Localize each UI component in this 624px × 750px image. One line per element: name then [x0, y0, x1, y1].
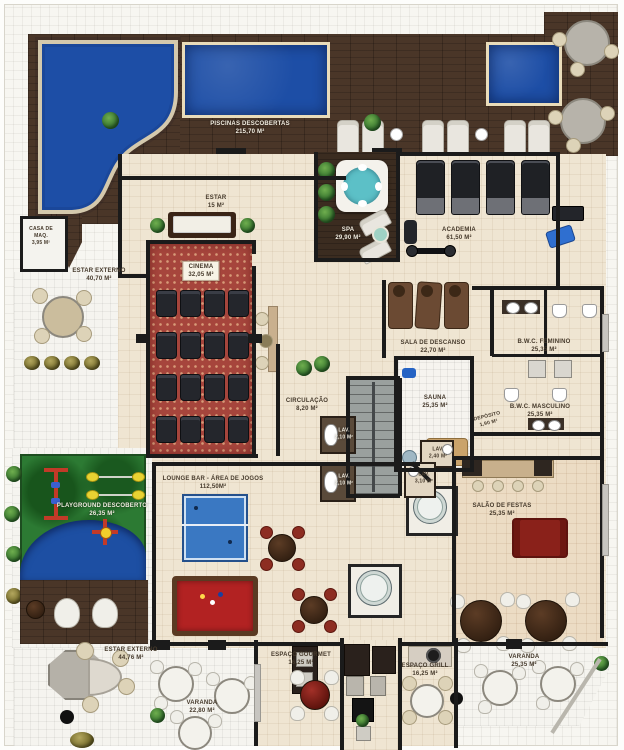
wall	[346, 376, 400, 380]
cinema-seat	[156, 290, 177, 317]
kitchen-cart	[356, 726, 371, 741]
plant	[318, 206, 335, 223]
room-area: 25,35 m²	[518, 346, 571, 354]
toilet	[552, 388, 567, 402]
room-name: CINEMA	[188, 263, 213, 271]
room-area: 2,10 m²	[335, 480, 353, 487]
wall	[492, 354, 602, 357]
wall	[118, 154, 122, 278]
room-label-bwc-feminino: B.W.C. FEMININO 25,35 m²	[518, 338, 571, 354]
room-area: 16,25 m²	[402, 670, 449, 678]
wall	[340, 638, 344, 750]
wall	[398, 378, 402, 496]
tree	[6, 466, 22, 482]
wall-pier	[248, 334, 262, 343]
lounge-chair	[260, 558, 273, 571]
side-table	[475, 128, 488, 141]
window	[602, 314, 609, 352]
cinema-seat	[180, 290, 201, 317]
plant	[150, 218, 165, 233]
window	[254, 664, 261, 722]
treadmill	[416, 160, 445, 215]
salao-stool	[492, 480, 504, 492]
stool	[82, 696, 99, 713]
wall	[152, 462, 156, 646]
pool-middle	[182, 42, 330, 118]
room-name: ESPAÇO GRILL	[402, 662, 449, 670]
wall	[394, 356, 474, 360]
room-area: 32,05 m²	[188, 271, 213, 279]
lounge-chair	[292, 558, 305, 571]
varanda-se-chair	[474, 664, 488, 678]
gourmet-chair	[290, 706, 305, 721]
room-label-espaco-grill: ESPAÇO GRILL 16,25 m²	[402, 662, 449, 678]
toilet	[504, 388, 519, 402]
grill-chair	[438, 710, 453, 725]
wall	[490, 286, 494, 356]
room-label-lav-1: LAV. 2,10 m²	[335, 427, 353, 441]
sink	[548, 420, 561, 431]
deck-chair	[566, 138, 581, 153]
room-name: ESTAR	[206, 194, 227, 202]
sun-lounger	[337, 120, 359, 155]
room-label-lav-2: LAV. 2,10 m²	[335, 473, 353, 487]
room-area: 16,25 m²	[271, 659, 331, 667]
room-name: LOUNGE BAR - ÁREA DE JOGOS	[163, 475, 264, 483]
room-area: 8,20 m²	[286, 405, 328, 413]
barbell-plate	[444, 245, 456, 257]
dining-chair	[516, 594, 531, 609]
room-label-estar-externo-sw: ESTAR EXTERNO 44,76 m²	[104, 646, 157, 662]
salao-stool	[472, 480, 484, 492]
wall	[472, 432, 604, 436]
room-name: ESPAÇO GOURMET	[271, 651, 331, 659]
jacuzzi-seat	[358, 164, 367, 171]
gourmet-chair	[290, 670, 305, 685]
varanda-chair	[206, 672, 220, 686]
room-name: SAUNA	[422, 394, 447, 402]
room-area: 44,76 m²	[104, 654, 157, 662]
cinema-seat	[228, 416, 249, 443]
sink	[506, 302, 520, 314]
room-label-sala-descanso: SALA DE DESCANSO 22,70 m²	[401, 339, 466, 355]
wall	[252, 266, 256, 458]
room-area: 61,50 m²	[442, 234, 476, 242]
sun-lounger	[447, 120, 469, 155]
gourmet-chair	[324, 706, 339, 721]
treadmill	[486, 160, 515, 215]
room-name: ESTAR EXTERNO	[104, 646, 157, 654]
billiard-ball	[210, 600, 215, 605]
kitchen-appliance	[370, 676, 386, 696]
room-area: 215,70 m²	[210, 128, 290, 136]
tree	[6, 546, 22, 562]
barbell-plate	[406, 245, 418, 257]
room-name: SALÃO DE FESTAS	[473, 502, 532, 510]
room-area: 15 m²	[206, 202, 227, 210]
room-name: VARANDA	[509, 653, 540, 661]
room-label-varanda-sw: VARANDA 22,80 m²	[187, 699, 218, 715]
treadmill	[521, 160, 550, 215]
room-name: PLAYGROUND DESCOBERTO	[57, 502, 147, 510]
wall	[146, 240, 256, 244]
room-name: ESTAR EXTERNO	[72, 267, 125, 275]
wall	[346, 494, 400, 498]
treadmill	[451, 160, 480, 215]
pingpong-table	[182, 494, 248, 562]
jacuzzi-seat	[375, 182, 382, 191]
cinema-seat	[180, 332, 201, 359]
plan-sheet: PISCINAS DESCOBERTAS 215,70 m² CASA DE M…	[4, 4, 618, 746]
wall-pier	[136, 334, 150, 343]
sun-lounger	[422, 120, 444, 155]
cinema-seat	[180, 416, 201, 443]
room-name: CASA DE MAQ.	[22, 226, 60, 240]
wall	[154, 462, 420, 466]
gourmet-table	[300, 680, 330, 710]
wall	[556, 154, 560, 290]
wall	[452, 456, 456, 646]
sun-lounger	[528, 120, 550, 155]
kitchen-appliance	[346, 676, 364, 696]
cinema-seat	[204, 290, 225, 317]
salao-kitchen-appliance	[534, 460, 552, 476]
wall	[456, 642, 608, 646]
wall	[394, 468, 474, 472]
room-label-casa-maq: CASA DE MAQ. 3,95 m²	[22, 226, 60, 246]
room-area: 22,80 m²	[187, 707, 218, 715]
deck-table	[560, 98, 606, 144]
bush	[24, 356, 40, 370]
room-area: 3,95 m²	[22, 239, 60, 246]
room-area: 25,35 m²	[422, 402, 447, 410]
cinema-seat	[204, 332, 225, 359]
room-label-cinema: CINEMA 32,05 m²	[182, 261, 219, 281]
wall-pier	[208, 640, 226, 650]
cinema-seat	[180, 374, 201, 401]
pingpong-dot	[228, 540, 232, 544]
bush	[44, 356, 60, 370]
room-area: 2,40 m²	[429, 453, 447, 460]
sw-deck-chair	[92, 598, 118, 628]
room-area: 40,70 m²	[72, 275, 125, 283]
sun-lounger	[504, 120, 526, 155]
kitchen-counter	[372, 646, 396, 674]
bush	[150, 708, 165, 723]
room-area: 29,90 m²	[335, 234, 360, 242]
wall	[398, 638, 402, 750]
jacuzzi-seat	[341, 182, 348, 191]
deck-chair	[604, 44, 619, 59]
wall	[276, 344, 280, 456]
cinema-seat	[228, 332, 249, 359]
seesaw-seat	[132, 490, 145, 500]
wall	[400, 642, 458, 646]
shower	[528, 360, 546, 378]
sink	[524, 302, 538, 314]
grill-chair	[438, 676, 453, 691]
varanda-chair	[188, 662, 202, 676]
sw-deck-table	[26, 600, 45, 619]
pingpong-net	[182, 524, 248, 526]
varanda-chair	[170, 710, 184, 724]
room-name: LAV.	[415, 471, 433, 478]
billiard-ball	[200, 594, 205, 599]
room-label-lounge: LOUNGE BAR - ÁREA DE JOGOS 112,50m²	[163, 475, 264, 491]
room-name: LAV.	[335, 427, 353, 434]
room-label-bwc-masculino: B.W.C. MASCULINO 25,35 m²	[510, 403, 570, 419]
bar-stool	[255, 312, 269, 326]
elevator-logo	[356, 570, 392, 606]
side-table	[390, 128, 403, 141]
grill-chair	[402, 710, 417, 725]
plant	[318, 184, 335, 201]
room-area: 2,10 m²	[335, 434, 353, 441]
jacuzzi-seat	[358, 200, 367, 207]
room-name: B.W.C. FEMININO	[518, 338, 571, 346]
plant	[296, 360, 312, 376]
room-label-lav-4: LAV. 3,10 m²	[415, 471, 433, 485]
sink	[532, 420, 545, 431]
plant	[364, 114, 381, 131]
dining-table	[460, 600, 502, 642]
varanda-se-chair	[536, 696, 550, 710]
room-label-lav-3: LAV. 2,40 m²	[429, 446, 447, 460]
room-area: 25,35 m²	[509, 661, 540, 669]
column	[60, 710, 74, 724]
room-label-espaco-gourmet: ESPAÇO GOURMET 16,25 m²	[271, 651, 331, 667]
varanda-chair	[150, 660, 164, 674]
swing-seat	[51, 482, 60, 488]
lounge-table	[300, 596, 328, 624]
billiard-table	[172, 576, 258, 636]
deck-chair	[548, 110, 563, 125]
stool	[118, 678, 135, 695]
room-label-academia: ACADEMIA 61,50 m²	[442, 226, 476, 242]
room-label-estar: ESTAR 15 m²	[206, 194, 227, 210]
deck-chair	[600, 106, 615, 121]
wall	[146, 454, 258, 458]
spa-side-table	[372, 226, 389, 243]
bush	[70, 732, 94, 748]
wall-pier	[506, 639, 522, 649]
wall	[382, 280, 386, 358]
lounger-pillow	[449, 285, 461, 297]
lounge-chair	[292, 620, 305, 633]
salao-stool	[532, 480, 544, 492]
stairs-rail	[372, 382, 375, 492]
cinema-seat	[156, 374, 177, 401]
room-name: LAV.	[335, 473, 353, 480]
gourmet-chair	[324, 670, 339, 685]
wall	[454, 638, 458, 748]
room-label-salao-festas: SALÃO DE FESTAS 25,35 m²	[473, 502, 532, 518]
tree	[4, 506, 20, 522]
room-area: 25,35 m²	[473, 510, 532, 518]
wall	[470, 356, 474, 472]
shower	[554, 360, 572, 378]
sw-deck-chair	[54, 598, 80, 628]
deck-chair	[570, 62, 585, 77]
sauna-bucket	[402, 368, 416, 378]
wall	[398, 152, 560, 156]
seesaw-seat	[86, 472, 99, 482]
kitchen-counter	[344, 644, 370, 676]
room-label-estar-externo-nw: ESTAR EXTERNO 40,70 m²	[72, 267, 125, 283]
room-area: 3,10 m²	[415, 478, 433, 485]
deck-chair	[552, 32, 567, 47]
roundabout-center	[100, 527, 112, 539]
wall	[314, 152, 318, 262]
nw-chair	[34, 328, 50, 344]
cinema-seat	[156, 332, 177, 359]
varanda-se-chair	[478, 700, 492, 714]
room-name: VARANDA	[187, 699, 218, 707]
nw-chair	[76, 326, 92, 342]
lounger-pillow	[393, 285, 405, 297]
grill	[426, 648, 441, 663]
bush	[356, 714, 369, 727]
room-name: ACADEMIA	[442, 226, 476, 234]
grill-chair	[402, 676, 417, 691]
pingpong-dot	[194, 506, 198, 510]
exercise-bike	[404, 220, 417, 244]
room-label-piscinas: PISCINAS DESCOBERTAS 215,70 m²	[210, 120, 290, 136]
wall	[314, 258, 400, 262]
room-area: 25,35 m²	[510, 411, 570, 419]
varanda-se-chair	[570, 662, 584, 676]
wall	[146, 240, 150, 458]
dining-table	[525, 600, 567, 642]
room-name: SALA DE DESCANSO	[401, 339, 466, 347]
plant	[314, 356, 330, 372]
wall	[456, 456, 604, 460]
bush	[64, 356, 80, 370]
varanda-chair	[208, 714, 222, 728]
room-name: SPA	[335, 226, 360, 234]
room-area: 22,70 m²	[401, 347, 466, 355]
lounger-pillow	[421, 285, 433, 297]
room-area: 112,50m²	[163, 483, 264, 491]
room-name: PISCINAS DESCOBERTAS	[210, 120, 290, 128]
toilet	[552, 304, 567, 318]
nw-chair	[76, 290, 92, 306]
estar-sofa-cushions	[173, 216, 231, 233]
dining-chair	[500, 592, 515, 607]
room-label-circulacao: CIRCULAÇÃO 8,20 m²	[286, 397, 328, 413]
seesaw-seat	[132, 472, 145, 482]
cinema-seat	[204, 374, 225, 401]
lounge-chair	[292, 526, 305, 539]
lounge-chair	[292, 588, 305, 601]
deck-table	[564, 20, 610, 66]
billiard-ball	[218, 592, 223, 597]
window	[602, 484, 609, 556]
salao-sofa	[512, 518, 568, 558]
wall	[118, 176, 346, 180]
dining-chair	[565, 592, 580, 607]
room-label-sauna: SAUNA 25,35 m²	[422, 394, 447, 410]
cinema-seat	[156, 416, 177, 443]
salao-stool	[512, 480, 524, 492]
cinema-seat	[204, 416, 225, 443]
lounge-chair	[324, 620, 337, 633]
wall	[256, 642, 344, 646]
lounge-chair	[260, 526, 273, 539]
room-label-varanda-se: VARANDA 25,35 m²	[509, 653, 540, 669]
wall	[252, 240, 256, 254]
room-name: B.W.C. MASCULINO	[510, 403, 570, 411]
pool-right	[486, 42, 562, 106]
room-name: CIRCULAÇÃO	[286, 397, 328, 405]
room-label-playground: PLAYGROUND DESCOBERTO 26,35 m²	[57, 502, 147, 518]
stool	[76, 642, 94, 660]
cinema-seat	[228, 374, 249, 401]
plant	[102, 112, 119, 129]
room-area: 26,35 m²	[57, 510, 147, 518]
lounge-table	[268, 534, 296, 562]
room-label-spa: SPA 29,90 m²	[335, 226, 360, 242]
lounge-chair	[324, 588, 337, 601]
toilet	[582, 304, 597, 318]
cinema-seat	[228, 290, 249, 317]
bar-stool	[255, 356, 269, 370]
seesaw-seat	[86, 490, 99, 500]
bush	[84, 356, 100, 370]
room-name: LAV.	[429, 446, 447, 453]
wall	[396, 152, 400, 262]
plant	[240, 218, 255, 233]
nw-chair	[32, 288, 48, 304]
